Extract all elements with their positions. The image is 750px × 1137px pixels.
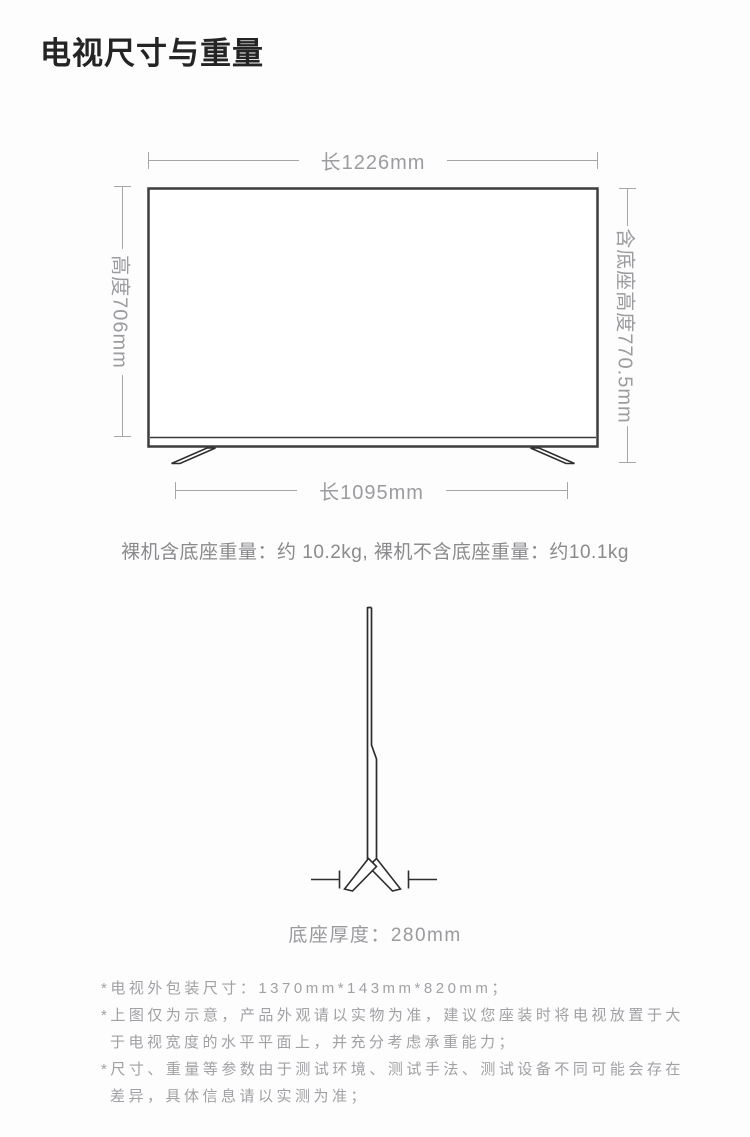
footnote-measurement-disclaimer: *尺寸、重量等参数由于测试环境、测试手法、测试设备不同可能会存在差异，具体信息请…: [101, 1056, 693, 1110]
weight-text: 裸机含底座重量：约 10.2kg, 裸机不含底座重量：约10.1kg: [0, 537, 750, 564]
dimension-height-with-base: 含底座高度770.5mm: [610, 188, 644, 463]
dim-tick: [567, 482, 568, 499]
dimension-stand-width: 长1095mm: [175, 481, 568, 499]
tv-left-foot: [172, 448, 216, 464]
dim-line: [149, 160, 299, 161]
tv-side-profile: [368, 607, 377, 867]
dim-line: [176, 490, 297, 491]
footnotes: *电视外包装尺寸：1370mm*143mm*820mm； *上图仅为示意，产品外…: [101, 975, 693, 1110]
tv-side-foot-left: [345, 859, 377, 892]
dim-line: [627, 426, 628, 463]
dimension-top-width: 长1226mm: [148, 151, 598, 169]
dim-line: [122, 187, 123, 249]
dim-line: [627, 189, 628, 226]
tv-screen-outline: [149, 189, 598, 447]
dim-label-height-with-base: 含底座高度770.5mm: [613, 228, 642, 423]
dim-label-top-width: 长1226mm: [299, 146, 448, 175]
dim-line: [447, 160, 597, 161]
tv-right-foot: [531, 448, 575, 464]
depth-marker-right: [409, 871, 438, 889]
dim-tick: [114, 436, 131, 437]
tv-side-drawing: [0, 590, 750, 910]
dim-line: [446, 490, 567, 491]
tv-spec-page: 电视尺寸与重量 长1226mm 长1095mm 高度706mm: [0, 0, 750, 1137]
dim-label-stand-width: 长1095mm: [297, 476, 446, 505]
dimension-panel-height: 高度706mm: [105, 186, 139, 437]
depth-marker-left: [311, 871, 340, 889]
page-title: 电视尺寸与重量: [40, 28, 264, 73]
footnote-packaging-size: *电视外包装尺寸：1370mm*143mm*820mm；: [101, 975, 693, 1002]
dim-tick: [619, 462, 636, 463]
base-depth-label: 底座厚度：280mm: [0, 920, 750, 947]
footnote-placement-advice: *上图仅为示意，产品外观请以实物为准，建议您座装时将电视放置于大于电视宽度的水平…: [101, 1002, 693, 1056]
dim-label-wrapper: 高度706mm: [105, 249, 139, 375]
dim-tick: [597, 152, 598, 169]
dim-label-panel-height: 高度706mm: [108, 255, 137, 369]
dim-line: [122, 375, 123, 437]
dim-label-wrapper: 含底座高度770.5mm: [610, 226, 644, 426]
